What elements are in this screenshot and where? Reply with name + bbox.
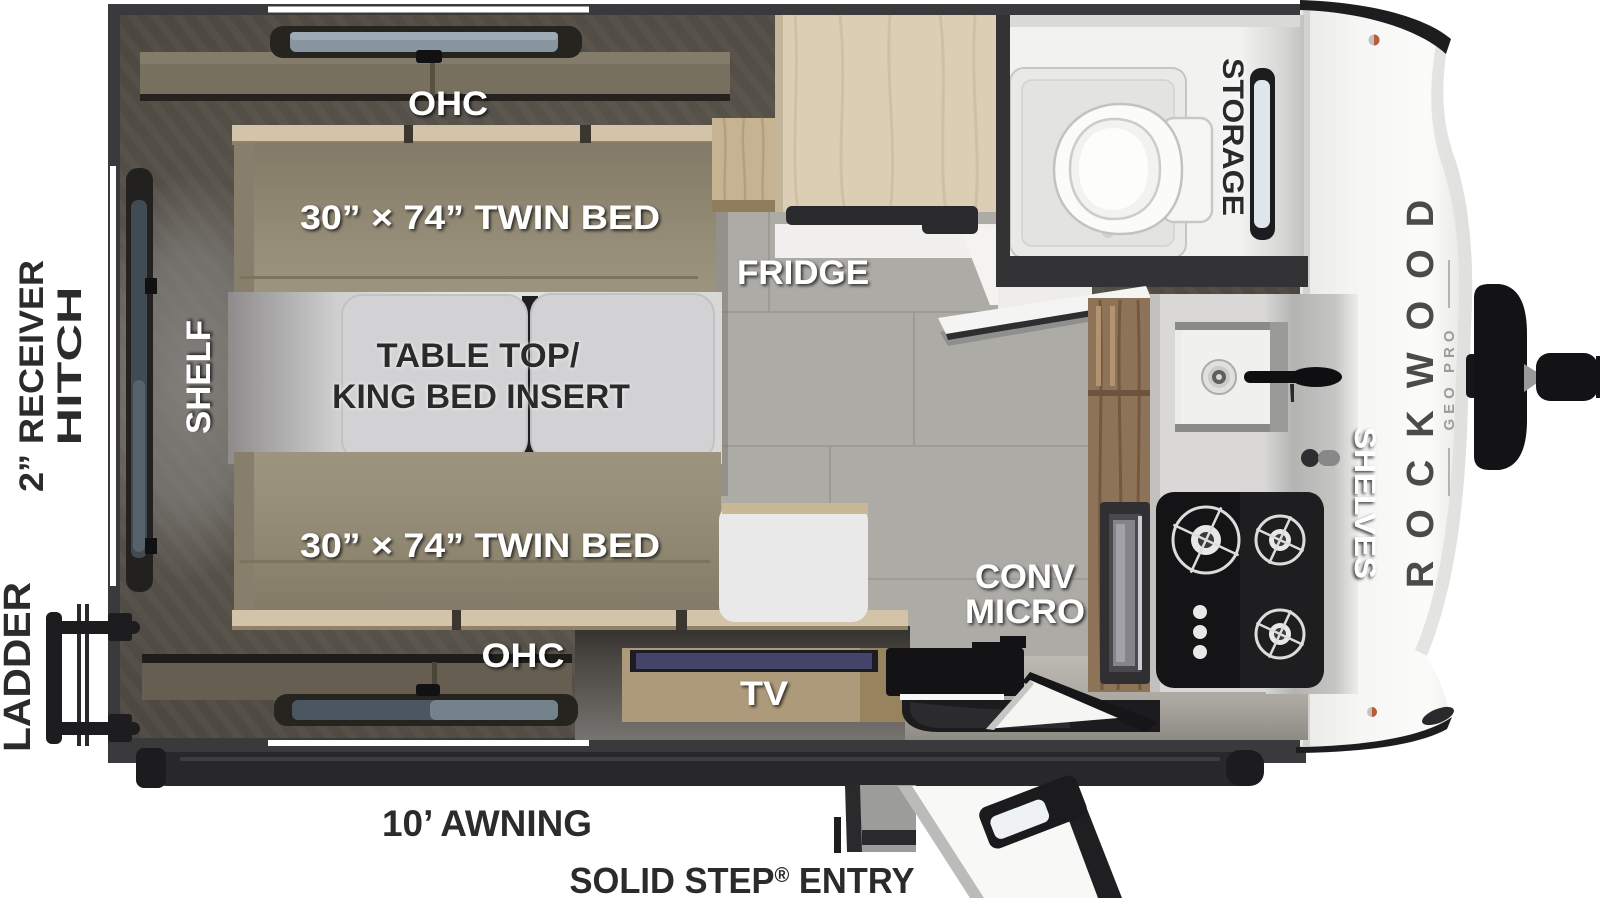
svg-text:10’ AWNING: 10’ AWNING	[382, 803, 592, 844]
svg-text:OHC: OHC	[482, 637, 565, 675]
svg-text:GEO PRO: GEO PRO	[1441, 325, 1458, 430]
svg-text:HITCH: HITCH	[51, 287, 89, 446]
svg-text:STORAGE: STORAGE	[1216, 58, 1249, 216]
svg-text:30” × 74” TWIN BED: 30” × 74” TWIN BED	[300, 527, 660, 565]
svg-text:FRIDGE: FRIDGE	[737, 254, 869, 292]
svg-text:MICRO: MICRO	[965, 593, 1085, 631]
svg-text:OHC: OHC	[408, 85, 488, 123]
svg-text:30” × 74” TWIN BED: 30” × 74” TWIN BED	[300, 199, 660, 237]
svg-text:TABLE TOP/: TABLE TOP/	[377, 337, 581, 375]
svg-text:SHELVES: SHELVES	[1348, 427, 1381, 579]
svg-text:LADDER: LADDER	[0, 582, 39, 752]
svg-text:CONV: CONV	[975, 558, 1075, 596]
svg-text:2” RECEIVER: 2” RECEIVER	[13, 260, 51, 492]
svg-text:ROCKWOOD: ROCKWOOD	[1400, 178, 1442, 588]
svg-text:KING BED INSERT: KING BED INSERT	[332, 378, 630, 416]
svg-text:TV: TV	[740, 675, 788, 713]
svg-text:SHELF: SHELF	[180, 320, 218, 434]
svg-text:SOLID STEP® ENTRY: SOLID STEP® ENTRY	[570, 860, 915, 898]
